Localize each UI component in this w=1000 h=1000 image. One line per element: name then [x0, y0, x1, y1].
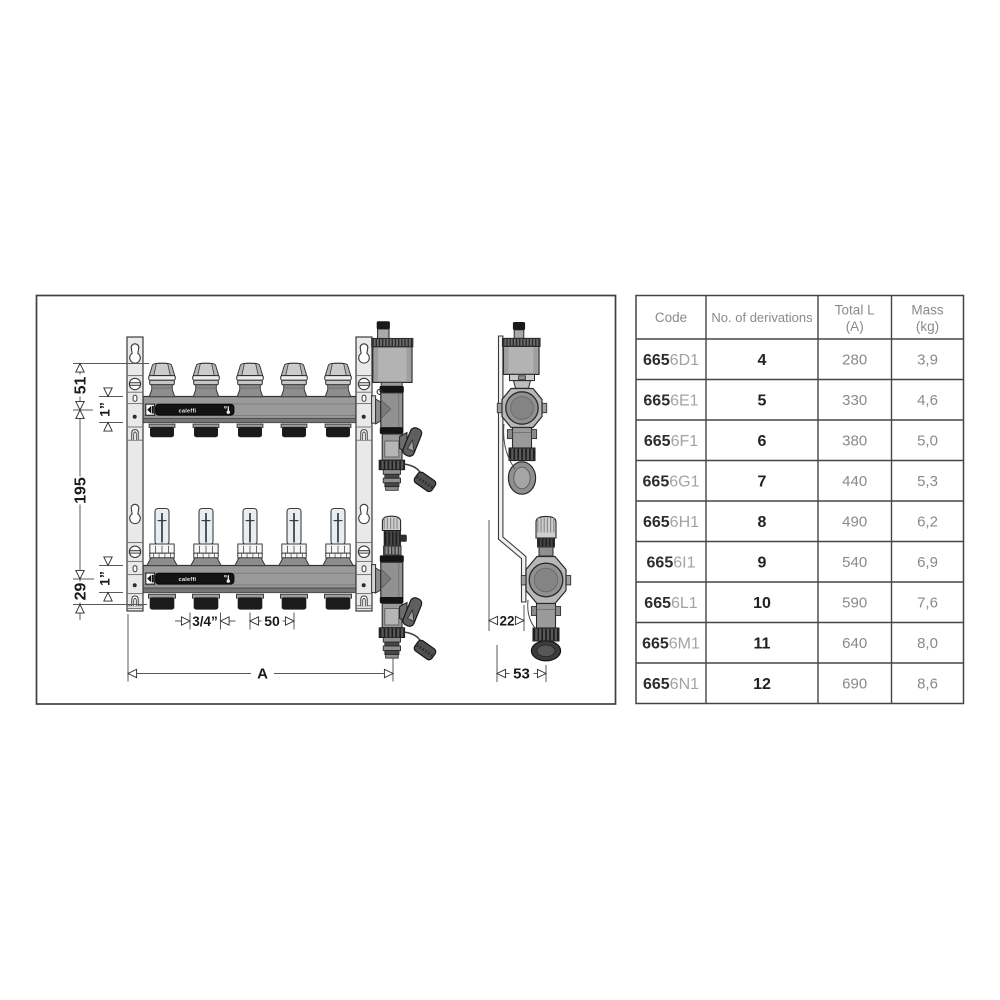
svg-text:6656M1: 6656M1 [642, 636, 700, 653]
svg-text:8,6: 8,6 [917, 676, 938, 693]
svg-text:51: 51 [73, 377, 90, 395]
svg-text:380: 380 [842, 433, 867, 450]
svg-text:10: 10 [753, 595, 771, 612]
svg-text:caleffi: caleffi [179, 577, 197, 583]
svg-text:Mass: Mass [911, 303, 944, 318]
svg-text:6656E1: 6656E1 [643, 393, 698, 410]
svg-text:690: 690 [842, 676, 867, 693]
svg-text:5,0: 5,0 [917, 433, 938, 450]
svg-text:caleffi: caleffi [179, 408, 197, 414]
svg-text:6656L1: 6656L1 [644, 595, 698, 612]
svg-text:(A): (A) [846, 319, 864, 334]
svg-text:1”: 1” [97, 402, 113, 417]
svg-text:640: 640 [842, 635, 867, 652]
svg-text:440: 440 [842, 473, 867, 490]
svg-text:7: 7 [758, 474, 767, 491]
svg-text:6656H1: 6656H1 [643, 514, 699, 531]
svg-text:195: 195 [73, 477, 90, 504]
svg-text:9: 9 [758, 555, 767, 572]
svg-text:8,0: 8,0 [917, 635, 938, 652]
svg-text:3,9: 3,9 [917, 352, 938, 369]
svg-text:50: 50 [264, 613, 280, 629]
svg-text:6,9: 6,9 [917, 554, 938, 571]
svg-text:5,3: 5,3 [917, 473, 938, 490]
svg-text:22: 22 [499, 613, 514, 628]
svg-text:6,2: 6,2 [917, 514, 938, 531]
svg-text:6656F1: 6656F1 [644, 433, 698, 450]
svg-text:(kg): (kg) [916, 319, 939, 334]
svg-text:6656D1: 6656D1 [643, 352, 699, 369]
svg-text:540: 540 [842, 554, 867, 571]
svg-text:6656I1: 6656I1 [647, 555, 696, 572]
svg-text:No. of derivations: No. of derivations [711, 310, 813, 325]
svg-text:1”: 1” [97, 571, 113, 586]
svg-text:8: 8 [758, 514, 767, 531]
svg-text:280: 280 [842, 352, 867, 369]
svg-text:5: 5 [758, 393, 767, 410]
svg-text:7,6: 7,6 [917, 595, 938, 612]
svg-text:4,6: 4,6 [917, 392, 938, 409]
svg-text:A: A [257, 666, 268, 683]
svg-text:3/4”: 3/4” [192, 614, 218, 629]
svg-text:Total L: Total L [835, 303, 875, 318]
svg-text:490: 490 [842, 514, 867, 531]
svg-text:29: 29 [73, 583, 90, 601]
svg-text:330: 330 [842, 392, 867, 409]
svg-text:590: 590 [842, 595, 867, 612]
svg-text:6: 6 [758, 433, 767, 450]
svg-text:12: 12 [753, 676, 771, 693]
svg-text:53: 53 [513, 666, 530, 683]
svg-text:11: 11 [754, 636, 771, 653]
svg-text:Code: Code [655, 310, 687, 325]
svg-text:4: 4 [758, 352, 767, 369]
svg-text:6656G1: 6656G1 [643, 474, 700, 491]
svg-text:6656N1: 6656N1 [643, 676, 699, 693]
